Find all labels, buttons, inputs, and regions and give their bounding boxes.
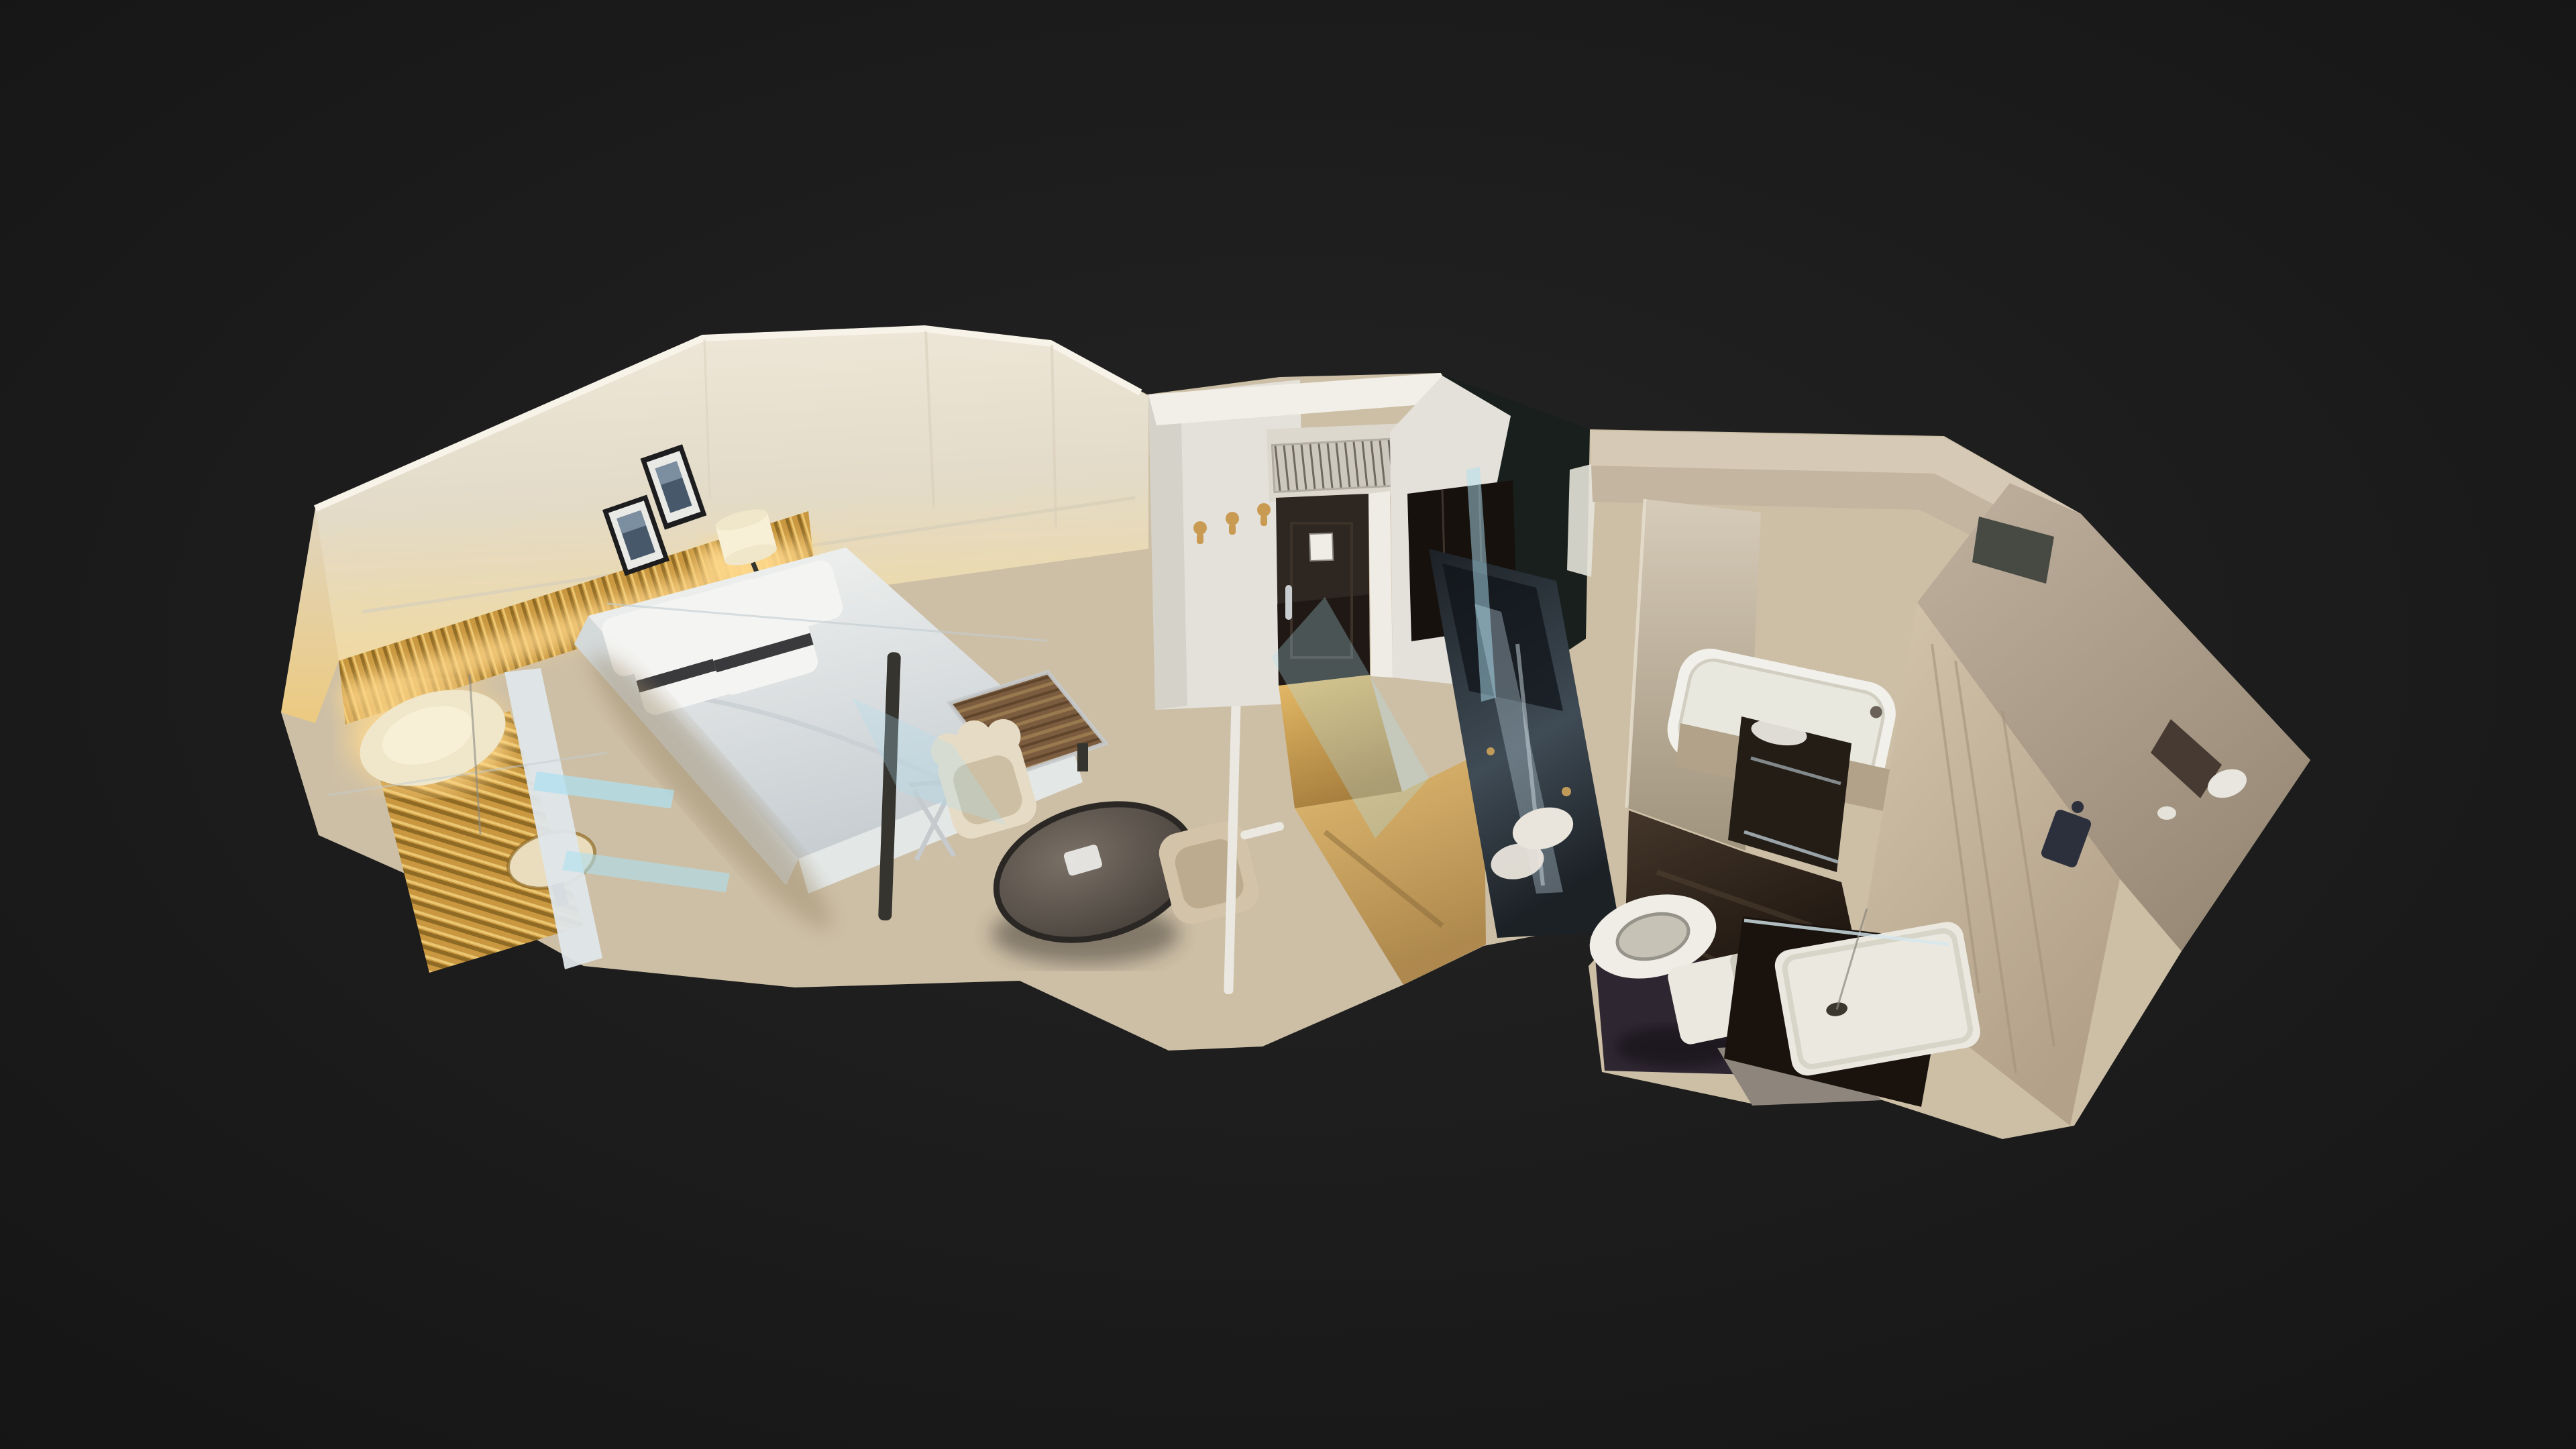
gold-fleck [1562, 787, 1571, 796]
door-card [1309, 533, 1333, 561]
white-blob-artifact [2157, 806, 2176, 820]
bench-leg [1077, 743, 1088, 771]
gold-fleck [1487, 747, 1495, 755]
entry-left-wall-shade [1148, 392, 1187, 710]
door-jamb [1368, 491, 1393, 678]
dollhouse-canvas[interactable] [0, 0, 2576, 1449]
viewer-stage[interactable] [0, 0, 2576, 1449]
door-handle [1285, 585, 1292, 620]
dollhouse-model [281, 329, 2310, 1139]
